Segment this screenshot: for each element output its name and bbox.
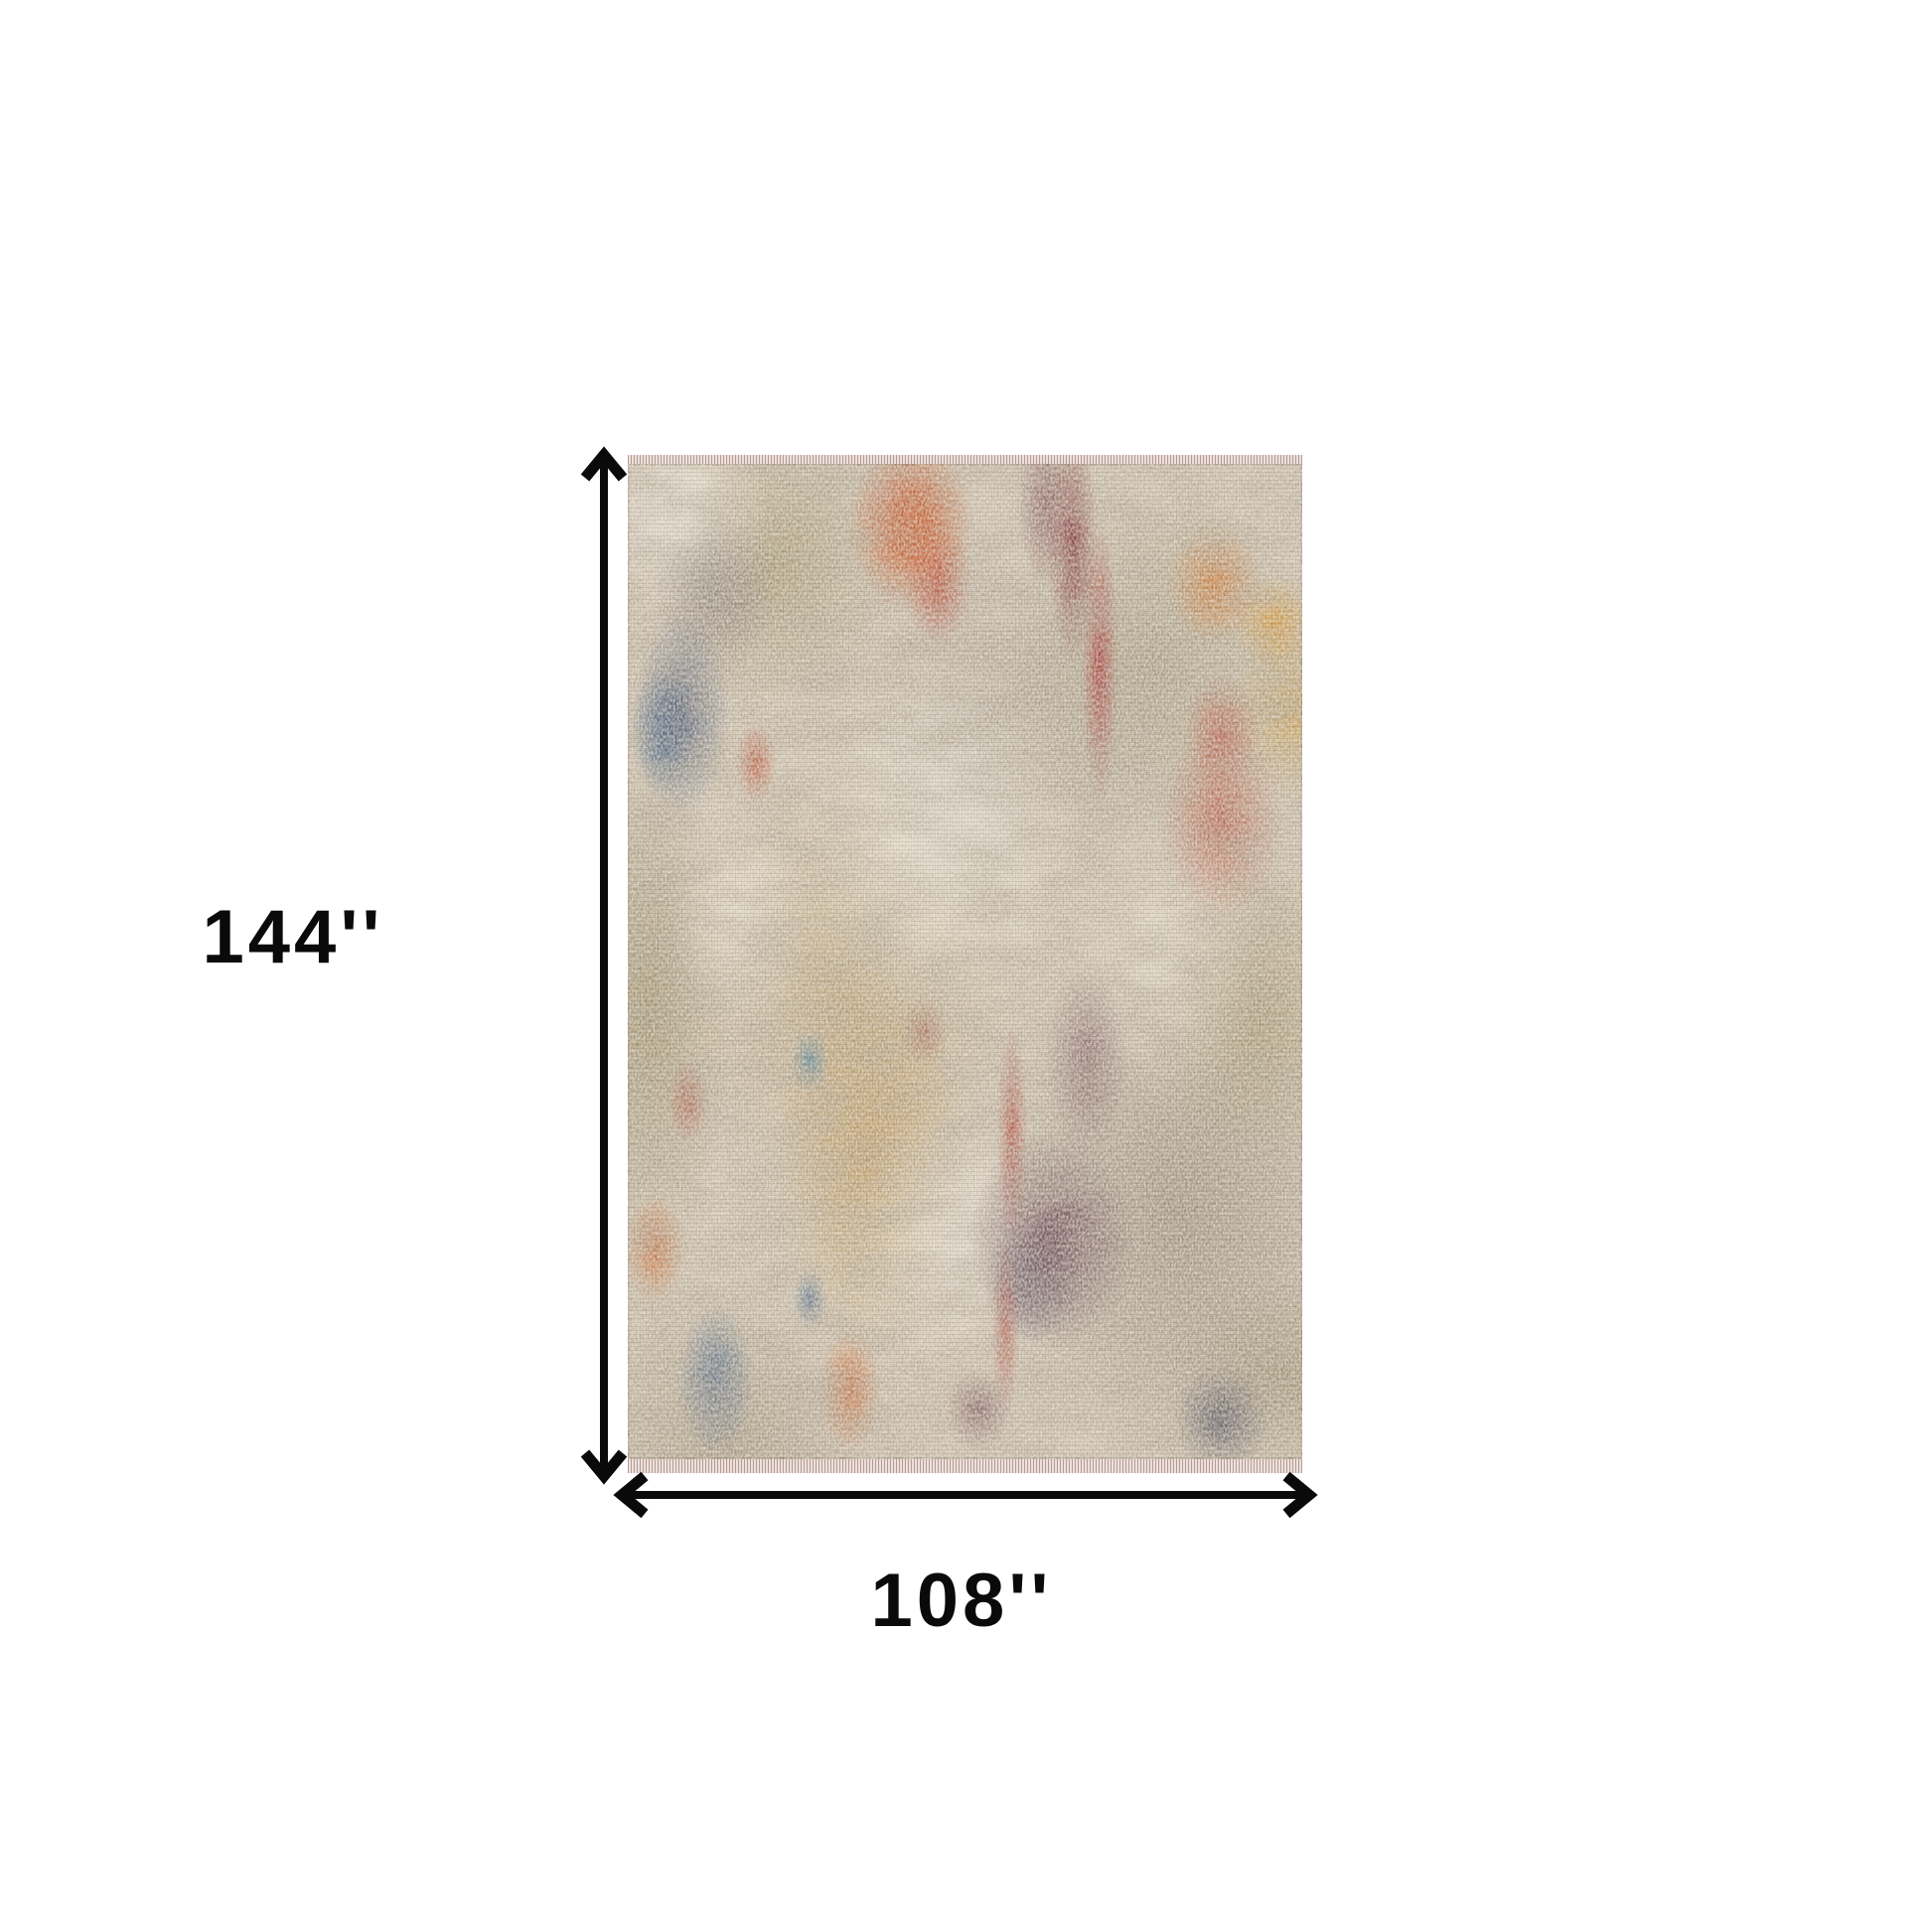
rug-fringe-top [628,455,1302,464]
height-arrow [585,455,623,1476]
rug-fringe-bottom [628,1459,1302,1473]
rug-pattern [628,464,1302,1459]
rug-image [628,455,1302,1473]
width-dimension-label: 108'' [852,1563,1071,1639]
rug-texture-noise [628,464,1302,1459]
height-dimension-label: 144'' [184,900,402,975]
product-dimension-diagram: 144'' 108'' [0,0,1932,1932]
width-arrow [622,1476,1309,1514]
